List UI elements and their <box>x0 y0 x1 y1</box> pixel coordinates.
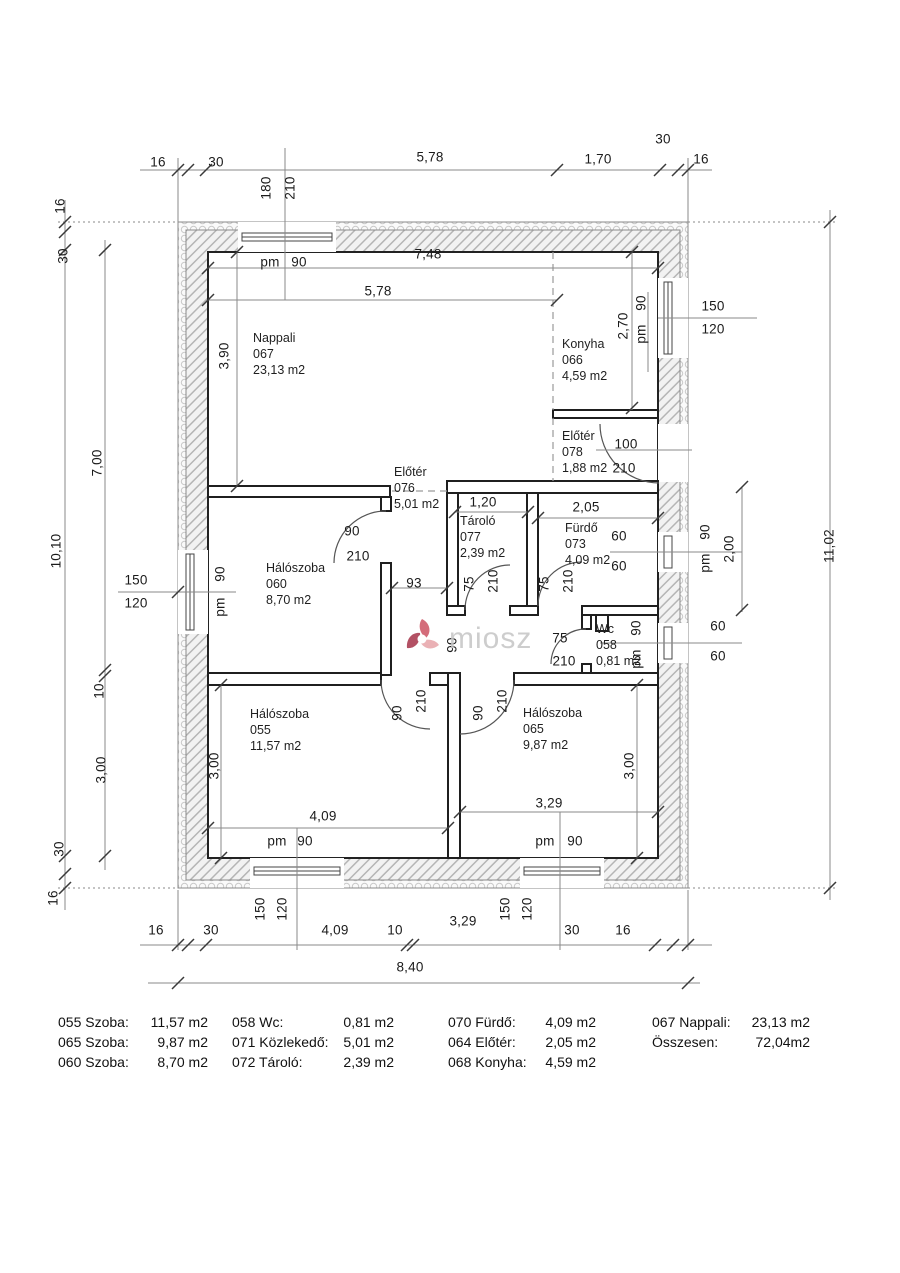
legend-entry-value: 23,13 m2 <box>752 1012 810 1032</box>
legend-entry: 067 Nappali:23,13 m2 <box>652 1012 810 1032</box>
legend-entry-label: 067 Nappali: <box>652 1012 731 1032</box>
legend-entry-label: 071 Közlekedő: <box>232 1032 329 1052</box>
legend-entry-value: 9,87 m2 <box>157 1032 208 1052</box>
window-top <box>238 222 336 252</box>
legend-entry-label: 070 Fürdő: <box>448 1012 516 1032</box>
legend-column: 055 Szoba:11,57 m2065 Szoba:9,87 m2060 S… <box>58 1012 208 1072</box>
exterior-walls <box>178 222 688 888</box>
legend-entry: Összesen:72,04m2 <box>652 1032 810 1052</box>
legend-entry-value: 2,05 m2 <box>545 1032 596 1052</box>
legend-entry: 070 Fürdő:4,09 m2 <box>448 1012 596 1032</box>
legend-entry-label: 072 Tároló: <box>232 1052 303 1072</box>
watermark-text: miosz <box>449 622 532 656</box>
floor-plan-page: 16305,781,703016180210pm907,485,7816303,… <box>0 0 900 1273</box>
legend-column: 067 Nappali:23,13 m2Összesen:72,04m2 <box>652 1012 810 1052</box>
legend-entry-value: 4,59 m2 <box>545 1052 596 1072</box>
legend-entry: 058 Wc:0,81 m2 <box>232 1012 394 1032</box>
legend-entry: 071 Közlekedő:5,01 m2 <box>232 1032 394 1052</box>
legend-entry: 072 Tároló:2,39 m2 <box>232 1052 394 1072</box>
legend-entry-label: 058 Wc: <box>232 1012 283 1032</box>
legend-entry: 065 Szoba:9,87 m2 <box>58 1032 208 1052</box>
legend-entry-label: 060 Szoba: <box>58 1052 129 1072</box>
legend-entry: 060 Szoba:8,70 m2 <box>58 1052 208 1072</box>
legend-entry-label: 064 Előtér: <box>448 1032 516 1052</box>
legend-entry-value: 0,81 m2 <box>343 1012 394 1032</box>
legend-entry: 068 Konyha:4,59 m2 <box>448 1052 596 1072</box>
legend-column: 058 Wc:0,81 m2071 Közlekedő:5,01 m2072 T… <box>232 1012 394 1072</box>
legend-entry: 055 Szoba:11,57 m2 <box>58 1012 208 1032</box>
watermark-logo-icon <box>399 616 445 662</box>
legend-entry-value: 5,01 m2 <box>343 1032 394 1052</box>
legend-entry-label: 055 Szoba: <box>58 1012 129 1032</box>
legend-entry-value: 72,04m2 <box>756 1032 810 1052</box>
legend-entry-label: 068 Konyha: <box>448 1052 527 1072</box>
legend-entry: 064 Előtér:2,05 m2 <box>448 1032 596 1052</box>
entrance-opening <box>658 424 688 482</box>
legend-entry-value: 11,57 m2 <box>151 1012 208 1032</box>
legend-entry-label: Összesen: <box>652 1032 718 1052</box>
legend-entry-value: 2,39 m2 <box>343 1052 394 1072</box>
legend-entry-label: 065 Szoba: <box>58 1032 129 1052</box>
legend-entry-value: 8,70 m2 <box>157 1052 208 1072</box>
legend-entry-value: 4,09 m2 <box>545 1012 596 1032</box>
watermark: miosz <box>399 616 532 662</box>
window-bottom-right <box>520 858 604 888</box>
legend-column: 070 Fürdő:4,09 m2064 Előtér:2,05 m2068 K… <box>448 1012 596 1072</box>
